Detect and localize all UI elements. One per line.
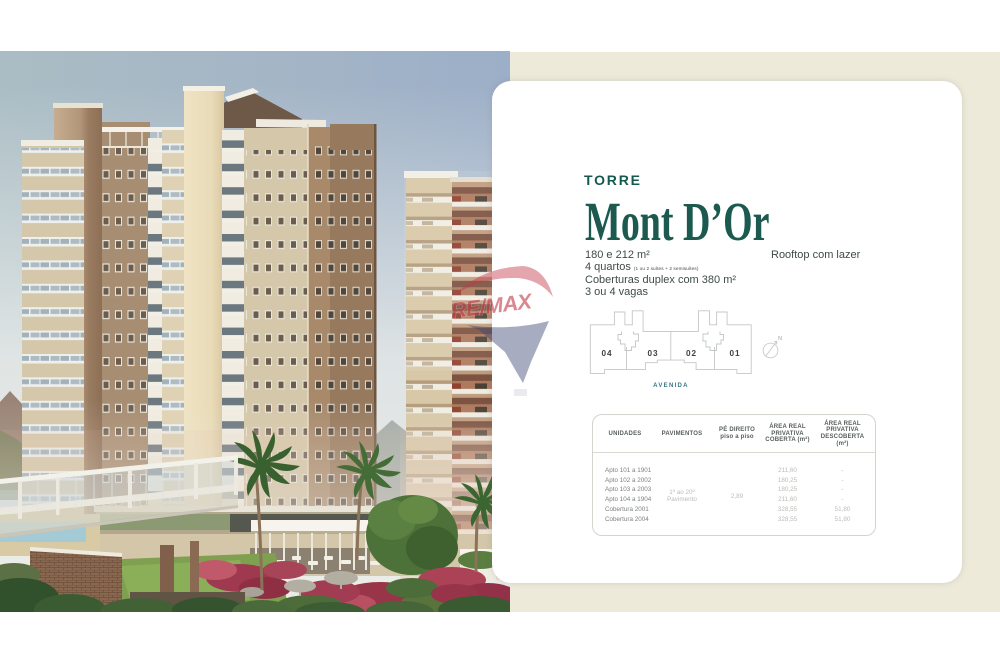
svg-text:03: 03 xyxy=(648,349,659,358)
svg-text:04: 04 xyxy=(602,349,613,358)
svg-text:RE/MAX: RE/MAX xyxy=(450,289,535,323)
svg-text:01: 01 xyxy=(730,349,741,358)
svg-text:02: 02 xyxy=(686,349,697,358)
svg-text:N: N xyxy=(778,336,782,342)
